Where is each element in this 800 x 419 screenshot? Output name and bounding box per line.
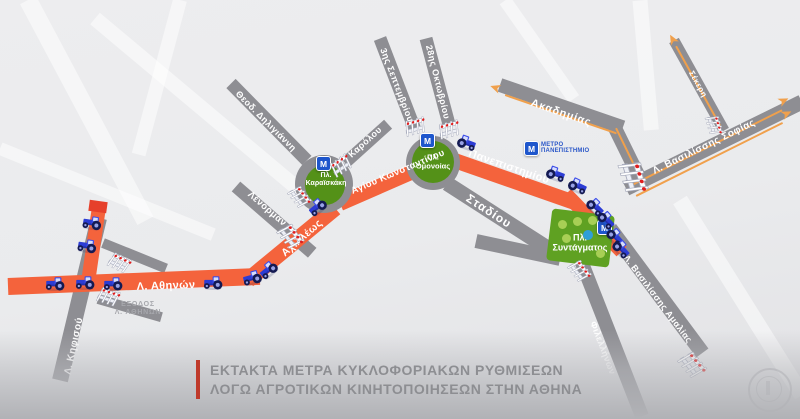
barrier-icon bbox=[103, 248, 135, 277]
tractor-icon bbox=[543, 162, 569, 184]
barrier-icon bbox=[612, 154, 652, 200]
banner-title-line1: ΕΚΤΑΚΤΑ ΜΕΤΡΑ ΚΥΚΛΟΦΟΡΙΑΚΩΝ ΡΥΘΜΙΣΕΩΝ bbox=[210, 361, 582, 379]
route-arrow-icon bbox=[666, 32, 681, 47]
tree-dot bbox=[596, 249, 605, 258]
tractor-icon bbox=[80, 213, 104, 231]
tractor-icon bbox=[102, 276, 124, 291]
tractor-icon bbox=[74, 275, 96, 290]
tractor-icon bbox=[565, 174, 591, 197]
barrier-icon bbox=[272, 217, 309, 255]
route-arrow-icon bbox=[778, 107, 793, 121]
tractor-icon bbox=[44, 276, 66, 291]
barrier-icon bbox=[702, 111, 726, 139]
news-banner: ΕΚΤΑΚΤΑ ΜΕΤΡΑ ΚΥΚΛΟΦΟΡΙΑΚΩΝ ΡΥΘΜΙΣΕΩΝ ΛΟ… bbox=[196, 360, 582, 399]
barrier-icon bbox=[325, 150, 358, 181]
banner-accent-bar bbox=[196, 360, 200, 399]
barrier-icon bbox=[563, 255, 595, 288]
fountain-dot bbox=[583, 230, 593, 240]
banner-title-line2: ΛΟΓΩ ΑΓΡΟΤΙΚΩΝ ΚΙΝΗΤΟΠΟΙΗΣΕΩΝ ΣΤΗΝ ΑΘΗΝΑ bbox=[210, 380, 582, 398]
route-arrow-icon bbox=[489, 81, 504, 94]
tree-dot bbox=[573, 217, 582, 226]
barrier-icon bbox=[400, 114, 430, 140]
traffic-map-graphic: Πλ.Καραϊσκάκη Πλ.Ομονοίας Πλ.Συντάγματος… bbox=[0, 0, 800, 419]
tractor-icon bbox=[454, 131, 480, 153]
tractor-icon bbox=[75, 236, 99, 254]
tractor-icon bbox=[202, 275, 224, 290]
tree-dot bbox=[558, 220, 567, 229]
tree-dot bbox=[562, 234, 571, 243]
